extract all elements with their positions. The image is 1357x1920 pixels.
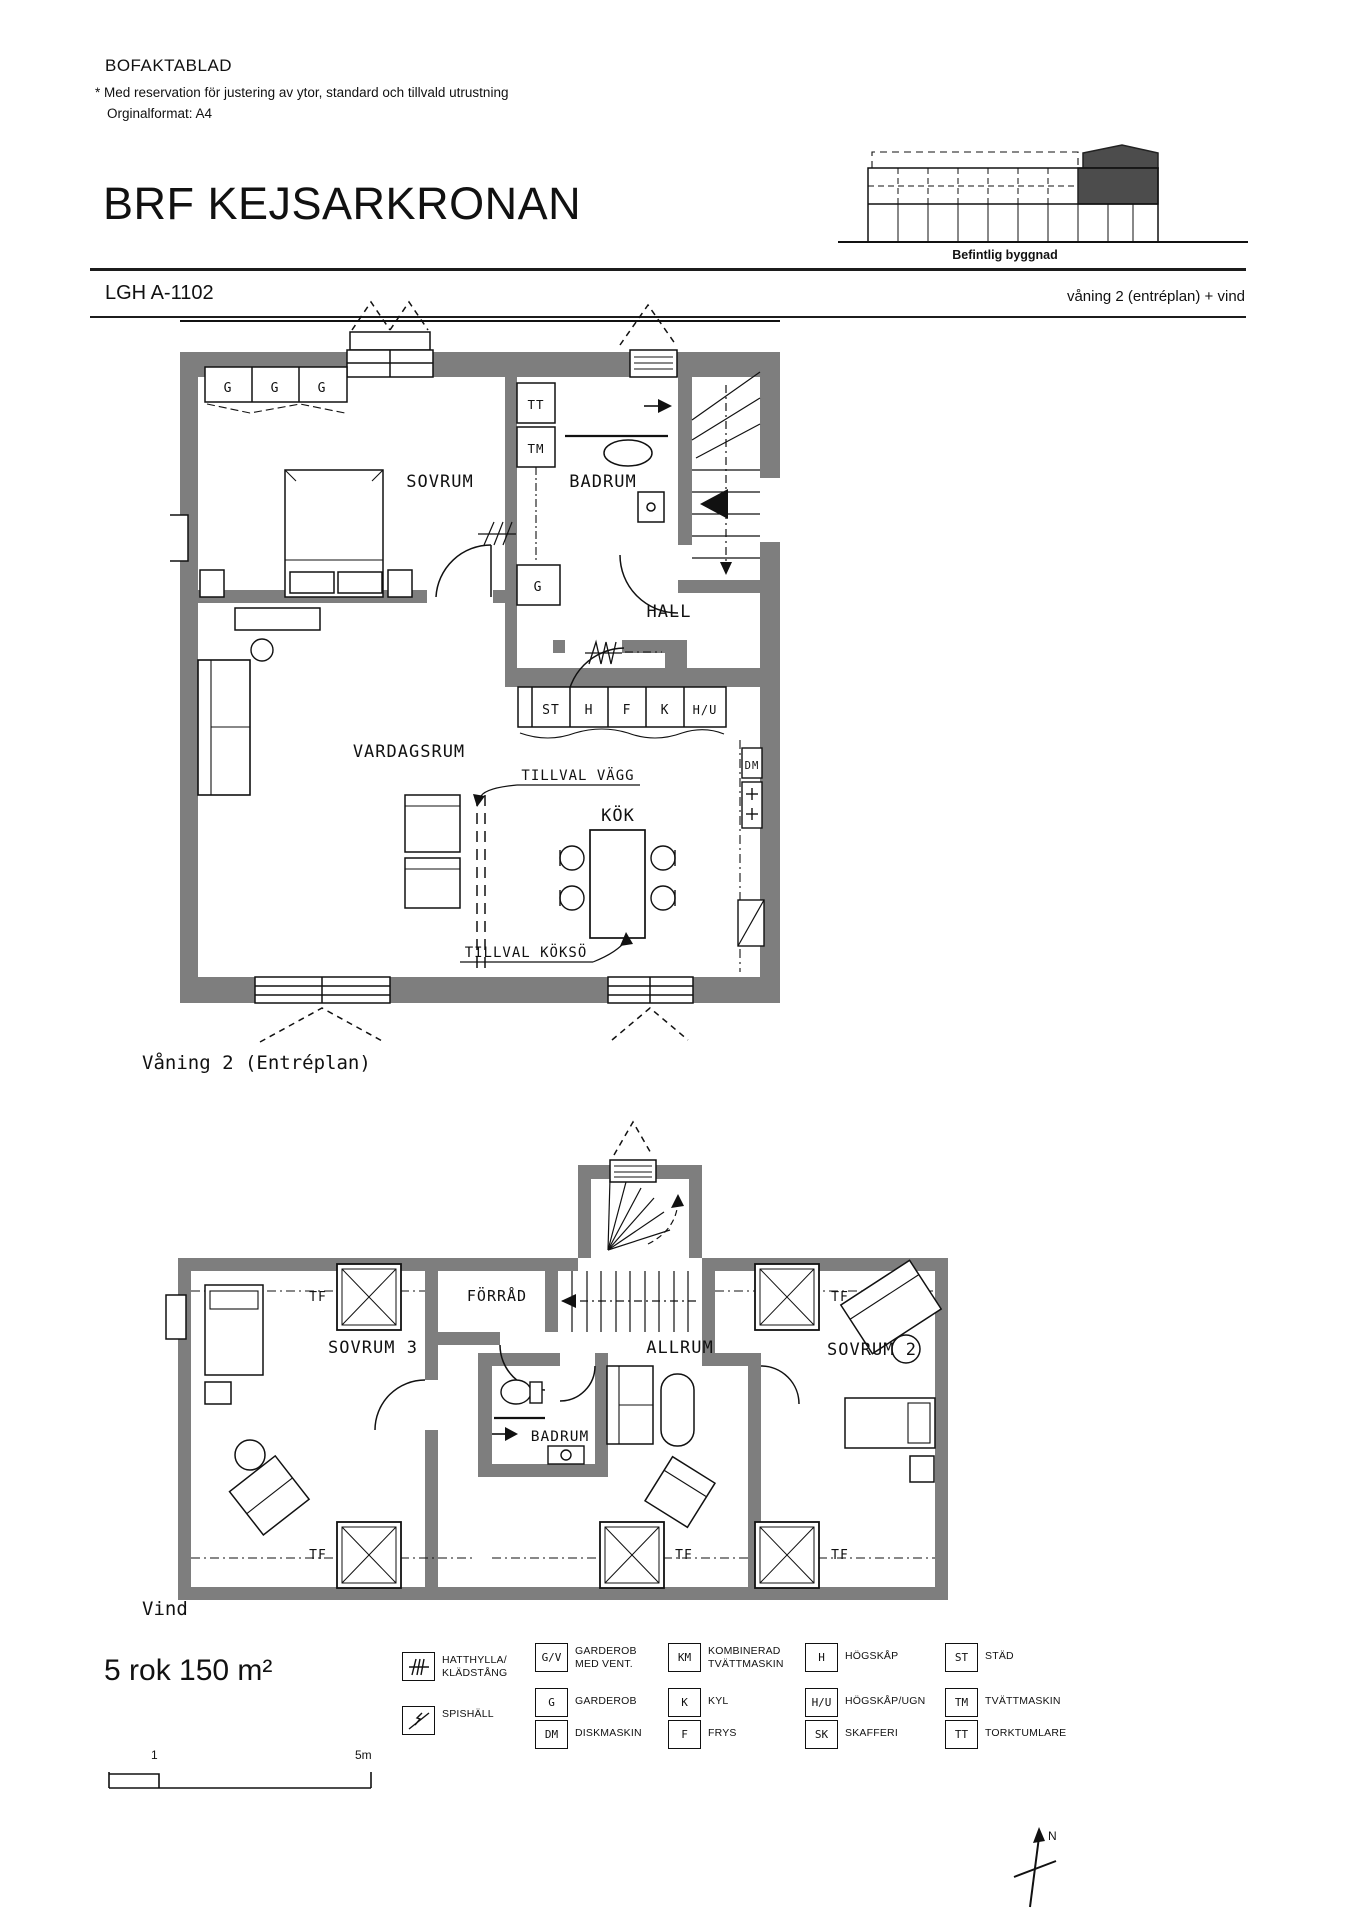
roof-knee-lines	[191, 1291, 935, 1558]
legend-code-box: G/V	[535, 1643, 568, 1672]
header-rule-top	[90, 268, 1246, 271]
room-label-kok: KÖK	[601, 804, 635, 826]
badrum2-door-arrow	[492, 1427, 518, 1441]
legend-code-box: KM	[668, 1643, 701, 1672]
legend-label: KLÄDSTÅNG	[442, 1667, 507, 1679]
sofa	[198, 660, 250, 795]
closet-code-k: K	[661, 703, 670, 718]
room-label-badrum2: BADRUM	[531, 1429, 589, 1445]
double-bed	[200, 470, 412, 597]
bofaktablad-page: BOFAKTABLAD * Med reservation för juster…	[0, 0, 1357, 1920]
walls-vind	[178, 1165, 948, 1600]
legend-label: DISKMASKIN	[575, 1720, 642, 1740]
closet-code-g-hall: G	[534, 580, 543, 595]
legend-item-f: F FRYS	[668, 1720, 737, 1749]
closet-code-f: F	[623, 703, 632, 718]
room-label-sovrum2: SOVRUM 2	[827, 1340, 917, 1360]
room-label-badrum: BADRUM	[569, 472, 636, 492]
legend-item-sk: SK SKAFFERI	[805, 1720, 898, 1749]
legend-code-box: F	[668, 1720, 701, 1749]
legend-label: GARDEROB	[575, 1688, 637, 1708]
floor2-caption: Vind	[142, 1598, 188, 1620]
legend-label: MED VENT.	[575, 1658, 633, 1670]
tf-label-3: TF	[309, 1548, 327, 1563]
room-label-forrad: FÖRRÅD	[467, 1286, 527, 1305]
legend-item-km: KM KOMBINERAD TVÄTTMASKIN	[668, 1643, 784, 1672]
legend-code-box: DM	[535, 1720, 568, 1749]
allrum-furniture	[607, 1366, 715, 1527]
page-title: BRF KEJSARKRONAN	[103, 178, 581, 230]
legend-label: TVÄTTMASKIN	[985, 1688, 1061, 1708]
format-note: Orginalformat: A4	[107, 106, 212, 121]
building-caption: Befintlig byggnad	[840, 248, 1170, 262]
north-compass: N	[1000, 1825, 1080, 1915]
room-label-sovrum: SOVRUM	[406, 472, 473, 492]
closet-code-tm: TM	[527, 441, 544, 456]
sovrum-window	[347, 302, 433, 377]
legend-item-spishall: SPISHÄLL	[402, 1706, 494, 1735]
scale-bar: 1 5m	[105, 1748, 395, 1800]
legend-item-gv: G/V GARDEROB MED VENT.	[535, 1643, 637, 1672]
hatthylla-icon	[402, 1652, 435, 1681]
legend-code-box: ST	[945, 1643, 978, 1672]
annotation-tillval-kokso: TILLVAL KÖKSÖ	[465, 943, 588, 961]
tf-roof-windows	[337, 1264, 819, 1588]
north-arrowhead	[1033, 1827, 1045, 1843]
legend-label: HATTHYLLA/	[442, 1654, 507, 1666]
doc-type-label: BOFAKTABLAD	[105, 56, 232, 76]
legend-item-h: H HÖGSKÅP	[805, 1643, 898, 1672]
legend-item-g: G GARDEROB	[535, 1688, 637, 1717]
stool	[251, 639, 273, 661]
legend-item-hatthylla: HATTHYLLA/ KLÄDSTÅNG	[402, 1652, 507, 1681]
kitchen-island	[590, 830, 645, 938]
sovrum3-furniture	[205, 1285, 309, 1535]
tillval-vagg-wall	[473, 785, 517, 972]
room-label-hall: HALL	[647, 602, 692, 622]
legend-label: SPISHÄLL	[442, 1706, 494, 1721]
legend-code-box: TM	[945, 1688, 978, 1717]
vardagsrum-window	[255, 977, 390, 1042]
stairs	[692, 372, 760, 575]
tf-label-4: TF	[675, 1548, 693, 1563]
legend-code-box: H	[805, 1643, 838, 1672]
legend-label: SKAFFERI	[845, 1720, 898, 1740]
badrum-door-arrow	[644, 399, 672, 413]
floorplan-vind: TF TF TF TF TF	[140, 1095, 985, 1625]
floorplan-entreplan: G G G TT TM G	[170, 285, 785, 1055]
spishall-icon	[402, 1706, 435, 1735]
legend-item-tt: TT TORKTUMLARE	[945, 1720, 1066, 1749]
legend-item-hu: H/U HÖGSKÅP/UGN	[805, 1688, 925, 1717]
legend-code-box: TT	[945, 1720, 978, 1749]
kok-window	[608, 977, 693, 1040]
legend-label: GARDEROB	[575, 1645, 637, 1657]
sovrum2-furniture	[841, 1260, 941, 1482]
walls	[180, 352, 780, 1003]
tower-vent-grille	[610, 1122, 656, 1182]
legend-item-dm: DM DISKMASKIN	[535, 1720, 642, 1749]
closet-code-tt: TT	[527, 397, 544, 412]
legend-label: STÄD	[985, 1643, 1014, 1663]
closet-code-g1: G	[224, 381, 233, 396]
floor1-caption: Våning 2 (Entréplan)	[142, 1052, 371, 1074]
room-label-allrum: ALLRUM	[646, 1338, 713, 1358]
floor-note: våning 2 (entréplan) + vind	[1067, 288, 1245, 305]
armchair-tables	[405, 795, 460, 908]
closet-code-st: ST	[542, 703, 560, 718]
legend-code-box: G	[535, 1688, 568, 1717]
legend-label: TVÄTTMASKIN	[708, 1658, 784, 1670]
legend-item-st: ST STÄD	[945, 1643, 1014, 1672]
legend-item-tm: TM TVÄTTMASKIN	[945, 1688, 1061, 1717]
legend-label: KYL	[708, 1688, 728, 1708]
legend-label: HÖGSKÅP/UGN	[845, 1688, 925, 1708]
disclaimer-text: * Med reservation för justering av ytor,…	[95, 85, 508, 100]
badrum2-fixtures	[494, 1380, 584, 1464]
legend-label: TORKTUMLARE	[985, 1720, 1066, 1740]
closet-code-g2: G	[271, 381, 280, 396]
building-elevation-icon	[838, 138, 1248, 248]
sideboard	[235, 608, 320, 630]
room-label-vardagsrum: VARDAGSRUM	[353, 742, 465, 762]
apartment-size: 5 rok 150 m²	[104, 1654, 272, 1688]
room-label-sovrum3: SOVRUM 3	[328, 1338, 418, 1358]
closet-code-dm: DM	[745, 760, 760, 772]
scale-label-5m: 5m	[355, 1748, 372, 1762]
closet-code-h: H	[585, 703, 594, 718]
legend-label: FRYS	[708, 1720, 737, 1740]
legend-code-box: SK	[805, 1720, 838, 1749]
scale-label-1: 1	[151, 1748, 158, 1762]
legend-label: KOMBINERAD	[708, 1645, 781, 1657]
wall-niche-vind	[166, 1295, 186, 1339]
closet-code-hu: H/U	[693, 703, 718, 717]
sovrum-door	[436, 545, 491, 597]
closet-code-g3: G	[318, 381, 327, 396]
legend-label: HÖGSKÅP	[845, 1643, 898, 1663]
tf-label-5: TF	[831, 1548, 849, 1563]
legend-code-box: H/U	[805, 1688, 838, 1717]
wall-niche	[170, 515, 188, 561]
north-label: N	[1048, 1829, 1057, 1843]
legend-item-k: K KYL	[668, 1688, 728, 1717]
tf-label-1: TF	[309, 1290, 327, 1305]
legend-code-box: K	[668, 1688, 701, 1717]
annotation-tillval-vagg: TILLVAL VÄGG	[521, 766, 634, 784]
